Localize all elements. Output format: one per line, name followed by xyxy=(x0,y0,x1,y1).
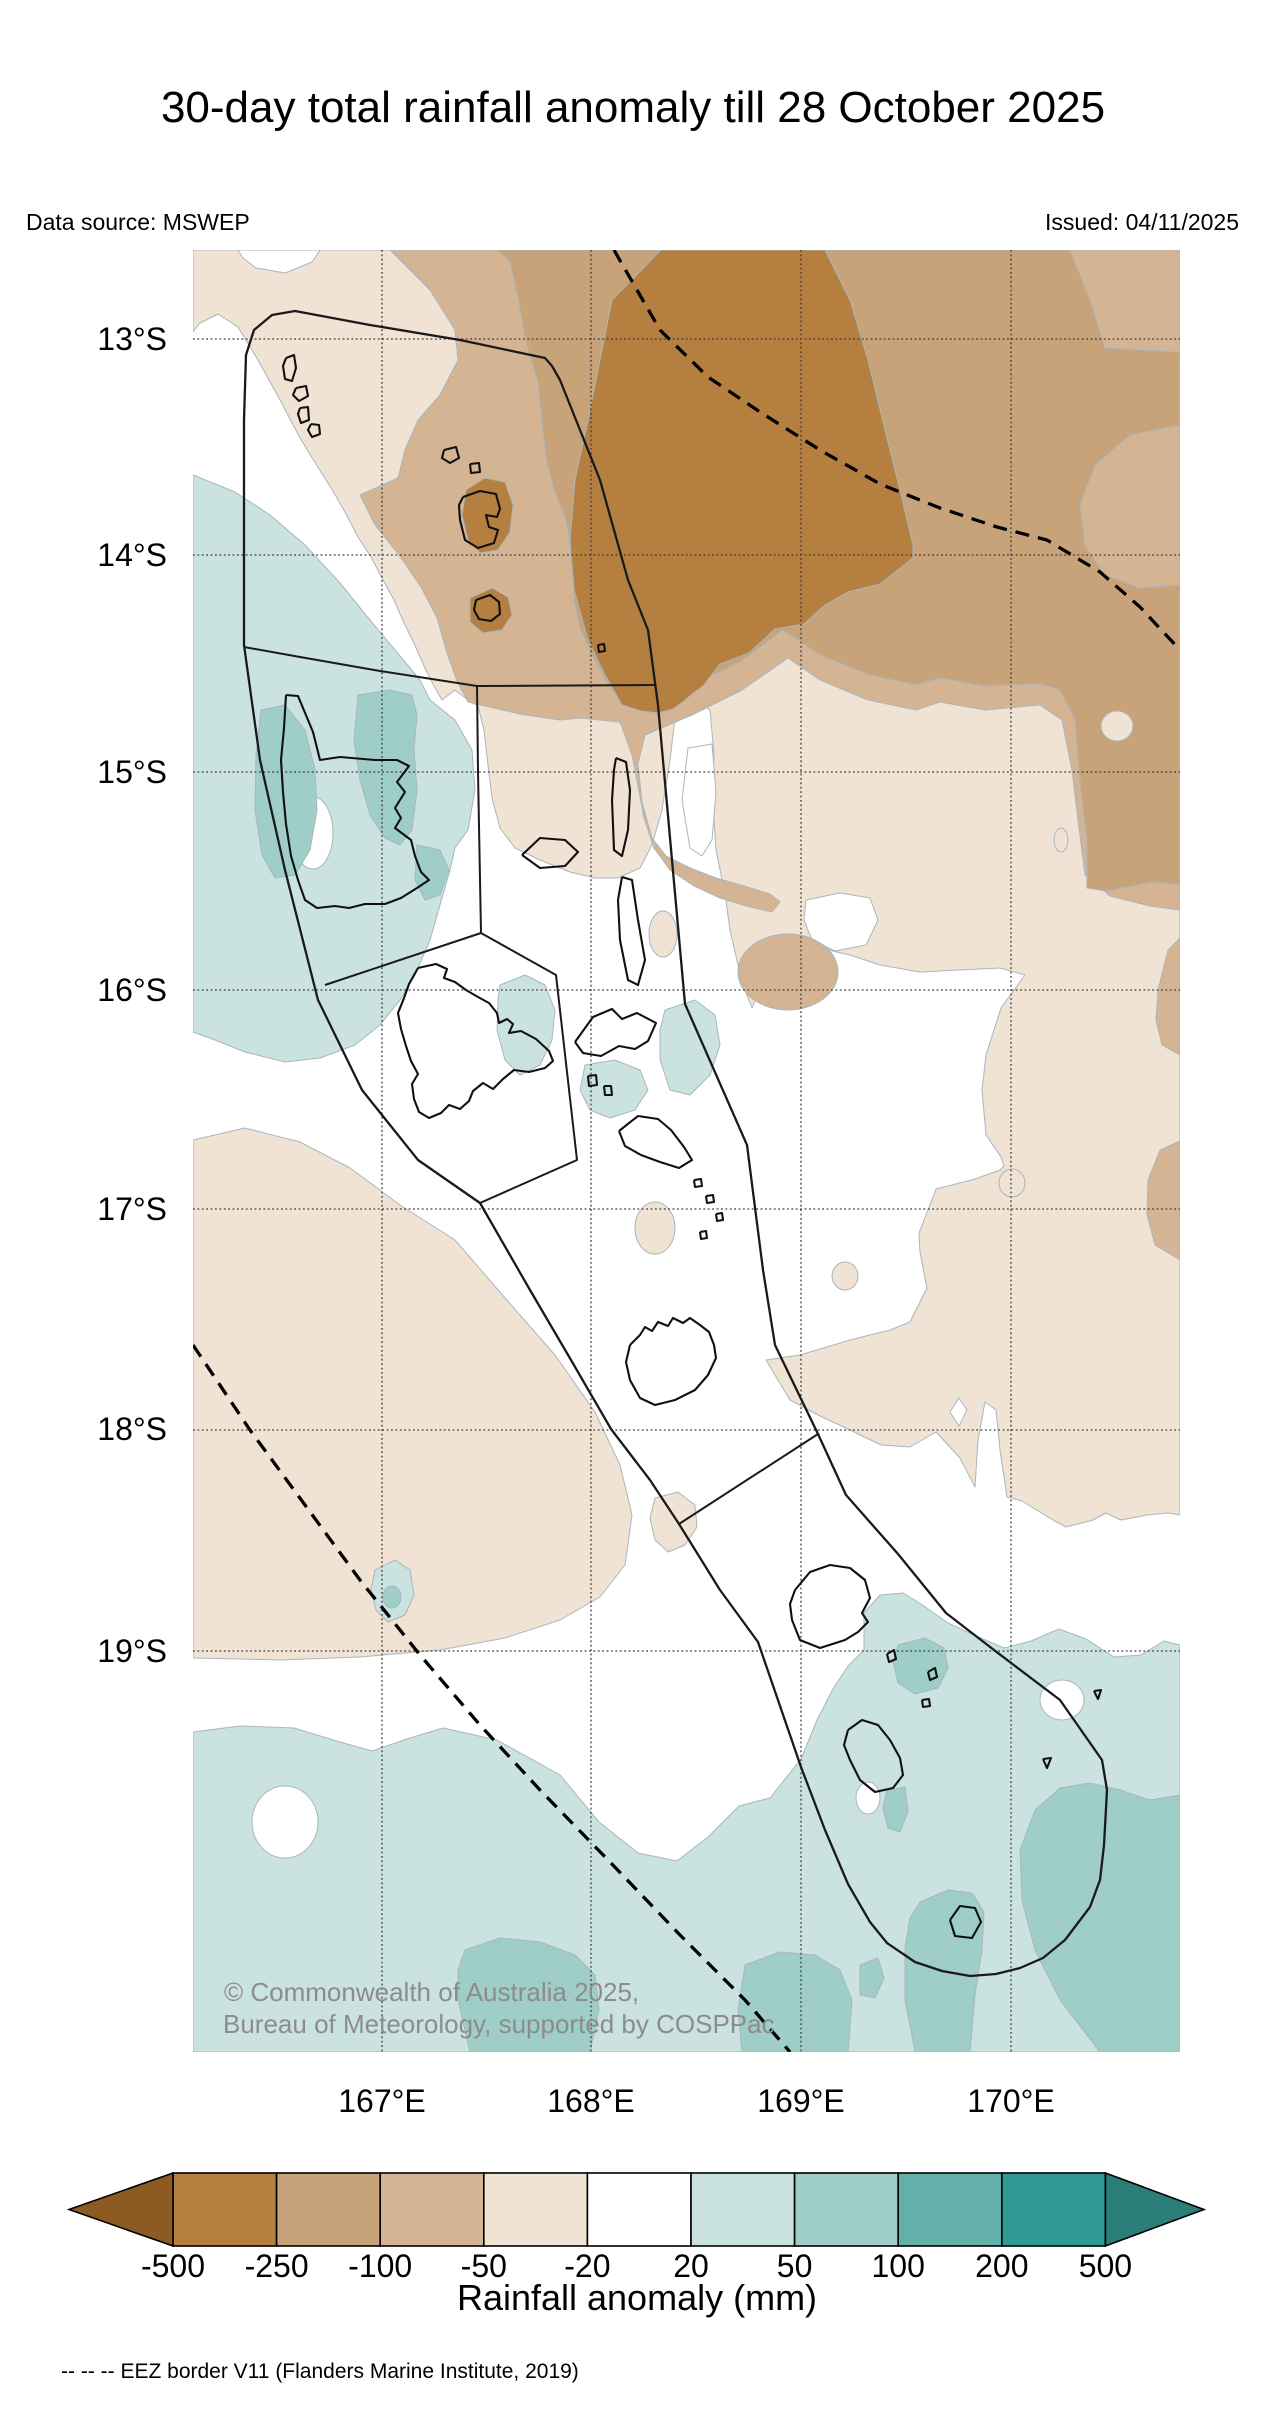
svg-text:19°S: 19°S xyxy=(97,1633,167,1669)
svg-text:16°S: 16°S xyxy=(97,972,167,1008)
svg-text:-500: -500 xyxy=(141,2248,205,2284)
svg-text:17°S: 17°S xyxy=(97,1191,167,1227)
svg-text:169°E: 169°E xyxy=(757,2083,845,2119)
svg-text:200: 200 xyxy=(975,2248,1028,2284)
svg-text:168°E: 168°E xyxy=(547,2083,635,2119)
svg-text:100: 100 xyxy=(872,2248,925,2284)
svg-text:18°S: 18°S xyxy=(97,1411,167,1447)
svg-text:-- -- -- EEZ border V11 (Fland: -- -- -- EEZ border V11 (Flanders Marine… xyxy=(61,2360,579,2383)
svg-text:-250: -250 xyxy=(245,2248,309,2284)
svg-text:167°E: 167°E xyxy=(338,2083,426,2119)
svg-text:500: 500 xyxy=(1079,2248,1132,2284)
svg-text:© Commonwealth of Australia 20: © Commonwealth of Australia 2025, xyxy=(224,1977,639,2007)
svg-text:Issued: 04/11/2025: Issued: 04/11/2025 xyxy=(1045,209,1239,235)
svg-text:14°S: 14°S xyxy=(97,537,167,573)
svg-text:-100: -100 xyxy=(348,2248,412,2284)
svg-text:30-day total rainfall anomaly: 30-day total rainfall anomaly till 28 Oc… xyxy=(161,83,1105,132)
svg-text:170°E: 170°E xyxy=(967,2083,1055,2119)
svg-text:Data source: MSWEP: Data source: MSWEP xyxy=(26,209,250,235)
svg-text:Rainfall anomaly (mm): Rainfall anomaly (mm) xyxy=(457,2277,817,2318)
svg-text:13°S: 13°S xyxy=(97,321,167,357)
svg-text:Bureau of Meteorology, support: Bureau of Meteorology, supported by COSP… xyxy=(223,2009,775,2039)
svg-text:15°S: 15°S xyxy=(97,754,167,790)
